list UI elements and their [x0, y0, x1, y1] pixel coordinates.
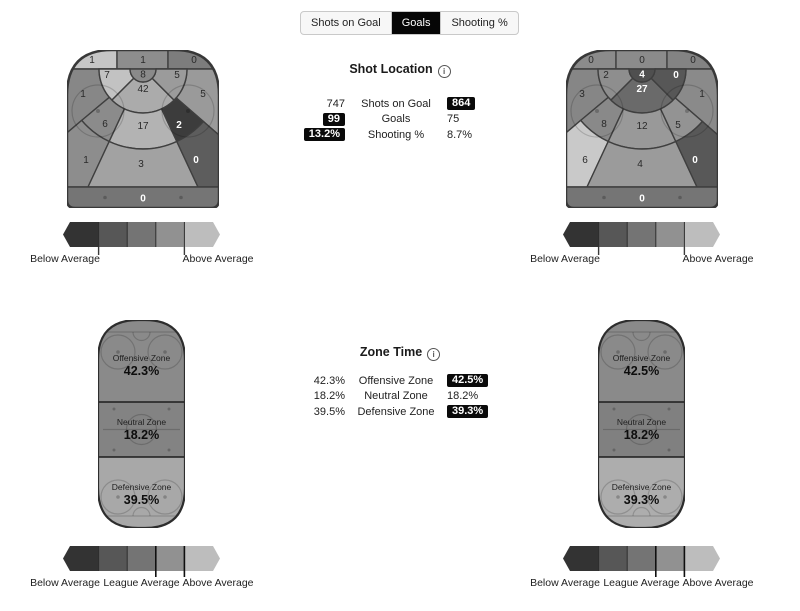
stat-label: Neutral Zone [350, 390, 442, 402]
legend-label-above: Above Average [682, 577, 753, 589]
legend-segment [127, 546, 156, 571]
legend-segment [563, 546, 599, 571]
svg-text:1: 1 [140, 55, 146, 66]
svg-text:0: 0 [639, 55, 645, 66]
legend-label-below: Below Average [530, 577, 600, 589]
zone-time-stats: 42.3% Offensive Zone 42.5% 18.2% Neutral… [287, 373, 517, 420]
legend-segment [563, 222, 599, 247]
legend-segment [684, 222, 720, 247]
svg-text:Neutral Zone: Neutral Zone [117, 417, 166, 427]
zone-time-title: Zone Timei [290, 345, 510, 361]
svg-text:8: 8 [140, 70, 146, 81]
svg-text:3: 3 [579, 89, 585, 100]
legend-label-below: Below Average [30, 253, 100, 265]
legend-segment [63, 222, 99, 247]
svg-text:2: 2 [176, 120, 182, 131]
stat-value-right: 8.7% [447, 129, 517, 141]
tab-shots-on-goal[interactable]: Shots on Goal [301, 12, 391, 34]
svg-text:Neutral Zone: Neutral Zone [617, 417, 666, 427]
legend-segment [656, 546, 685, 571]
stat-value-left: 13.2% [287, 128, 345, 141]
legend-segment [184, 546, 220, 571]
legend-segment [184, 222, 220, 247]
svg-text:1: 1 [89, 55, 95, 66]
legend-label-below: Below Average [30, 577, 100, 589]
info-icon[interactable]: i [427, 348, 440, 361]
svg-text:1: 1 [83, 155, 89, 166]
svg-text:Offensive Zone: Offensive Zone [613, 353, 671, 363]
stat-value-left: 39.5% [287, 406, 345, 418]
stat-label: Defensive Zone [350, 406, 442, 418]
highlighted-value: 39.3% [447, 405, 488, 418]
svg-text:7: 7 [104, 70, 110, 81]
svg-text:18.2%: 18.2% [624, 428, 659, 442]
svg-text:2: 2 [603, 70, 609, 81]
stat-value-right: 42.5% [447, 374, 517, 387]
svg-text:17: 17 [137, 121, 149, 132]
legend-label-above: Above Average [182, 253, 253, 265]
legend-segment [599, 222, 628, 247]
legend-label-above: Above Average [182, 577, 253, 589]
svg-text:39.5%: 39.5% [124, 493, 159, 507]
stat-value-left: 42.3% [287, 375, 345, 387]
svg-text:4: 4 [639, 70, 645, 81]
stat-label: Goals [350, 113, 442, 125]
legend-segment [656, 222, 685, 247]
svg-text:0: 0 [140, 194, 146, 205]
svg-text:0: 0 [690, 55, 696, 66]
zone-time-rink-right: Offensive Zone 42.5% Neutral Zone 18.2% … [598, 320, 685, 528]
legend-segment [127, 222, 156, 247]
svg-text:1: 1 [80, 89, 86, 100]
tab-shooting-pct[interactable]: Shooting % [440, 12, 517, 34]
stat-value-right: 864 [447, 97, 517, 110]
view-toggle-tabs: Shots on Goal Goals Shooting % [300, 11, 519, 35]
legend-segment [684, 546, 720, 571]
heatmap-legend-shot-right: Below Average Above Average [563, 222, 720, 266]
svg-text:39.3%: 39.3% [624, 493, 659, 507]
svg-text:6: 6 [102, 119, 108, 130]
svg-text:12: 12 [636, 121, 648, 132]
svg-text:0: 0 [588, 55, 594, 66]
svg-text:18.2%: 18.2% [124, 428, 159, 442]
info-icon[interactable]: i [438, 65, 451, 78]
svg-text:3: 3 [138, 159, 144, 170]
svg-text:Offensive Zone: Offensive Zone [113, 353, 171, 363]
svg-text:0: 0 [193, 155, 199, 166]
legend-segment [599, 546, 628, 571]
svg-text:42.3%: 42.3% [124, 364, 159, 378]
svg-text:42.5%: 42.5% [624, 364, 659, 378]
legend-label-league: League Average [103, 577, 179, 589]
tab-goals[interactable]: Goals [391, 12, 441, 34]
svg-text:0: 0 [639, 194, 645, 205]
heatmap-legend-zone-right: Below Average League Average Above Avera… [563, 546, 720, 590]
stat-value-right: 18.2% [447, 390, 517, 402]
shot-location-rink-right: 0 0 0 2 4 27 0 3 1 8 12 5 6 4 0 0 [566, 50, 718, 208]
legend-segment [99, 222, 128, 247]
highlighted-value: 864 [447, 97, 475, 110]
svg-text:6: 6 [582, 155, 588, 166]
team-comparison-dashboard: Shots on Goal Goals Shooting % Shot Loca… [0, 0, 800, 611]
svg-text:4: 4 [637, 159, 643, 170]
stat-value-right: 39.3% [447, 405, 517, 418]
stat-label: Shooting % [350, 129, 442, 141]
svg-text:5: 5 [174, 70, 180, 81]
zone-time-title-text: Zone Time [360, 345, 422, 359]
legend-label-below: Below Average [530, 253, 600, 265]
legend-ticks [99, 247, 185, 255]
shot-location-title-text: Shot Location [349, 62, 432, 76]
stat-value-right: 75 [447, 113, 517, 125]
heatmap-legend-zone-left: Below Average League Average Above Avera… [63, 546, 220, 590]
zone-time-rink-left: Offensive Zone 42.3% Neutral Zone 18.2% … [98, 320, 185, 528]
svg-text:8: 8 [601, 119, 607, 130]
stat-value-left: 99 [287, 113, 345, 126]
shot-location-rink-left: 1 1 0 7 8 42 5 1 5 6 17 2 1 3 0 0 [67, 50, 219, 208]
legend-segment [156, 222, 185, 247]
svg-text:0: 0 [191, 55, 197, 66]
legend-segment [99, 546, 128, 571]
legend-segment [627, 546, 656, 571]
stat-label: Shots on Goal [350, 98, 442, 110]
svg-text:Defensive Zone: Defensive Zone [112, 482, 172, 492]
highlighted-value: 99 [323, 113, 345, 126]
svg-text:0: 0 [673, 70, 679, 81]
stat-label: Offensive Zone [350, 375, 442, 387]
legend-segment [156, 546, 185, 571]
shot-location-stats: 747 Shots on Goal 864 99 Goals 75 13.2% … [287, 96, 517, 143]
svg-text:Defensive Zone: Defensive Zone [612, 482, 672, 492]
shot-location-title: Shot Locationi [290, 62, 510, 78]
legend-segment [627, 222, 656, 247]
highlighted-value: 13.2% [304, 128, 345, 141]
legend-label-league: League Average [603, 577, 679, 589]
svg-text:5: 5 [675, 120, 681, 131]
heatmap-legend-shot-left: Below Average Above Average [63, 222, 220, 266]
stat-value-left: 18.2% [287, 390, 345, 402]
highlighted-value: 42.5% [447, 374, 488, 387]
svg-text:0: 0 [692, 155, 698, 166]
svg-text:5: 5 [200, 89, 206, 100]
svg-text:27: 27 [636, 84, 648, 95]
legend-ticks [599, 247, 685, 255]
stat-value-left: 747 [287, 98, 345, 110]
svg-text:1: 1 [699, 89, 705, 100]
legend-label-above: Above Average [682, 253, 753, 265]
legend-segment [63, 546, 99, 571]
svg-text:42: 42 [137, 84, 149, 95]
